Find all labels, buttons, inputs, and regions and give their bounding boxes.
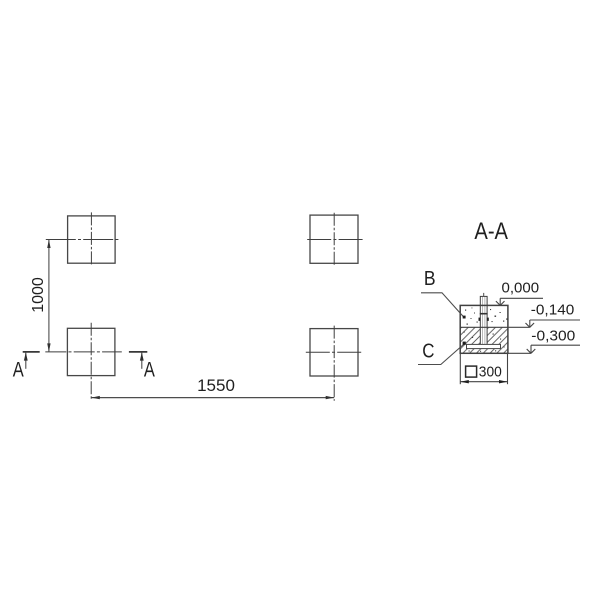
svg-text:-0,140: -0,140: [531, 301, 575, 318]
svg-text:-0,300: -0,300: [531, 328, 575, 345]
svg-text:B: B: [424, 268, 436, 290]
svg-text:1550: 1550: [197, 376, 235, 395]
svg-text:A: A: [13, 359, 24, 382]
svg-text:0,000: 0,000: [502, 279, 540, 296]
svg-text:A: A: [144, 359, 155, 382]
svg-text:300: 300: [479, 363, 502, 380]
svg-text:C: C: [422, 340, 434, 362]
svg-text:A-A: A-A: [474, 218, 508, 245]
svg-text:1000: 1000: [30, 277, 47, 313]
